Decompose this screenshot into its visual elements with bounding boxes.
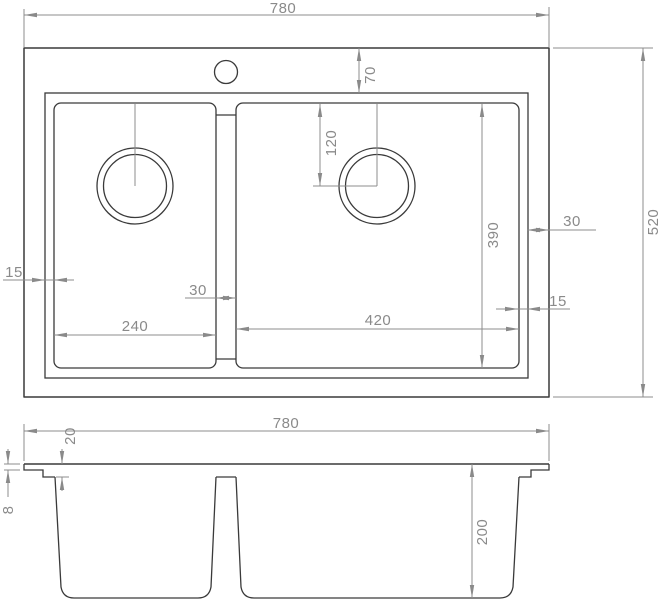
dim-right-bowl-width: 420 — [236, 312, 519, 331]
dim-drain-offset: 120 — [318, 104, 340, 186]
dim-label: 8 — [0, 506, 17, 515]
dim-label: 390 — [485, 222, 502, 249]
dim-rim-to-edge-right: 30 — [527, 213, 596, 232]
dim-label: 30 — [189, 282, 207, 299]
top-view: 780 520 70 120 — [3, 0, 660, 397]
dim-label: 15 — [5, 264, 23, 281]
dim-bowl-depth: 200 — [470, 464, 491, 598]
left-edge-profile — [24, 464, 55, 477]
dim-label: 120 — [323, 130, 340, 157]
dim-overall-width-front: 780 — [24, 415, 549, 461]
dim-rim-recess-depth: 20 — [56, 427, 79, 491]
dim-right-bowl-depth: 390 — [480, 104, 502, 368]
dim-label: 200 — [474, 519, 491, 546]
dim-label: 30 — [563, 213, 581, 230]
dim-edge-fold-height: 8 — [0, 449, 20, 514]
dim-label: 15 — [549, 293, 567, 310]
dim-label: 780 — [273, 415, 300, 432]
dim-rim-offset-top: 70 — [357, 48, 379, 93]
dim-overall-width-top: 780 — [24, 0, 549, 47]
sink-technical-drawing: 780 520 70 120 — [0, 0, 660, 600]
dim-divider-width: 30 — [185, 282, 236, 300]
dim-bowl-rim-gap-left: 15 — [3, 264, 74, 282]
sink-outer-edge — [24, 48, 549, 397]
dim-label: 520 — [645, 209, 660, 236]
dim-bowl-rim-gap-right: 15 — [496, 293, 570, 311]
dim-label: 20 — [62, 427, 79, 445]
dim-label: 240 — [122, 318, 149, 335]
right-edge-profile — [519, 464, 549, 477]
drawing-canvas: 780 520 70 120 — [0, 0, 660, 600]
left-bowl-profile — [55, 477, 216, 598]
dim-label: 420 — [365, 312, 392, 329]
front-view: 780 20 8 200 — [0, 415, 549, 598]
dim-label: 780 — [270, 0, 297, 17]
faucet-hole — [215, 61, 238, 84]
dim-label: 70 — [362, 66, 379, 84]
dim-left-bowl-width: 240 — [54, 318, 216, 337]
